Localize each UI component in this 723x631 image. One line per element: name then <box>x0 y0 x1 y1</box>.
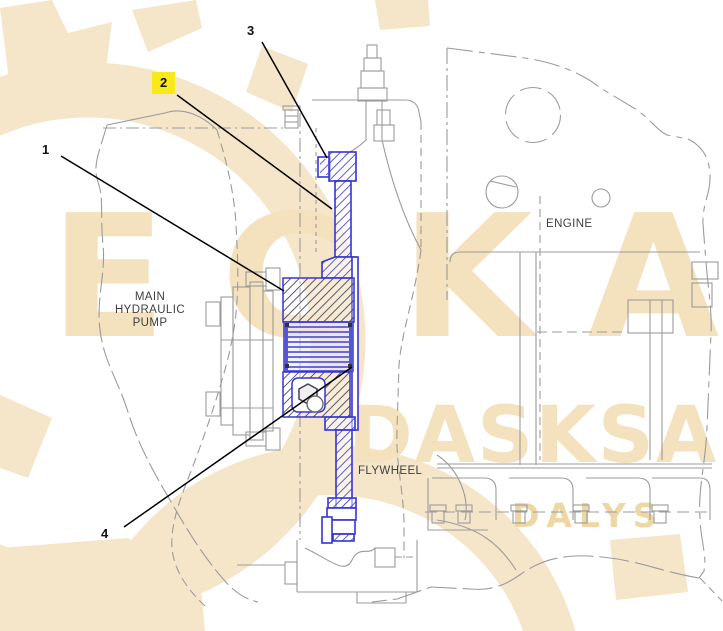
callout-2[interactable]: 2 <box>152 72 175 94</box>
flywheel-lower-shoulder[interactable] <box>325 417 355 430</box>
pump-label-line3: PUMP <box>105 317 195 330</box>
hub-splines[interactable] <box>284 322 353 371</box>
watermark-gear-tooth <box>132 0 202 52</box>
engine-label: ENGINE <box>546 218 593 231</box>
callout-3[interactable]: 3 <box>247 24 254 37</box>
watermark-word-3: DALYS <box>512 496 663 535</box>
pump-label: MAIN HYDRAULIC PUMP <box>105 291 195 330</box>
parts-diagram-canvas: ECKA DASKSA DALYS <box>0 0 723 631</box>
callout-1[interactable]: 1 <box>42 143 49 156</box>
callout-4[interactable]: 4 <box>101 527 108 540</box>
pump-label-line1: MAIN <box>105 291 195 304</box>
flywheel-top-flange[interactable] <box>329 152 356 181</box>
flywheel-bottom-bolt[interactable] <box>322 517 332 543</box>
watermark-gear-tooth <box>246 46 308 112</box>
watermark-gear-tooth <box>610 534 688 600</box>
watermark-gear-tooth <box>0 395 52 478</box>
watermark-gear-tooth <box>375 0 430 30</box>
coupling-hub-part[interactable] <box>283 278 354 417</box>
flywheel-label: FLYWHEEL <box>358 465 422 478</box>
hub-washer <box>307 396 323 412</box>
flywheel-upper-web[interactable] <box>335 181 351 257</box>
flywheel-upper-shoulder[interactable] <box>322 257 356 278</box>
flywheel-lower-web[interactable] <box>336 430 352 508</box>
pump-label-line2: HYDRAULIC <box>105 304 195 317</box>
watermark-word-1: ECKA <box>50 179 723 377</box>
hub-upper-block[interactable] <box>283 278 354 322</box>
